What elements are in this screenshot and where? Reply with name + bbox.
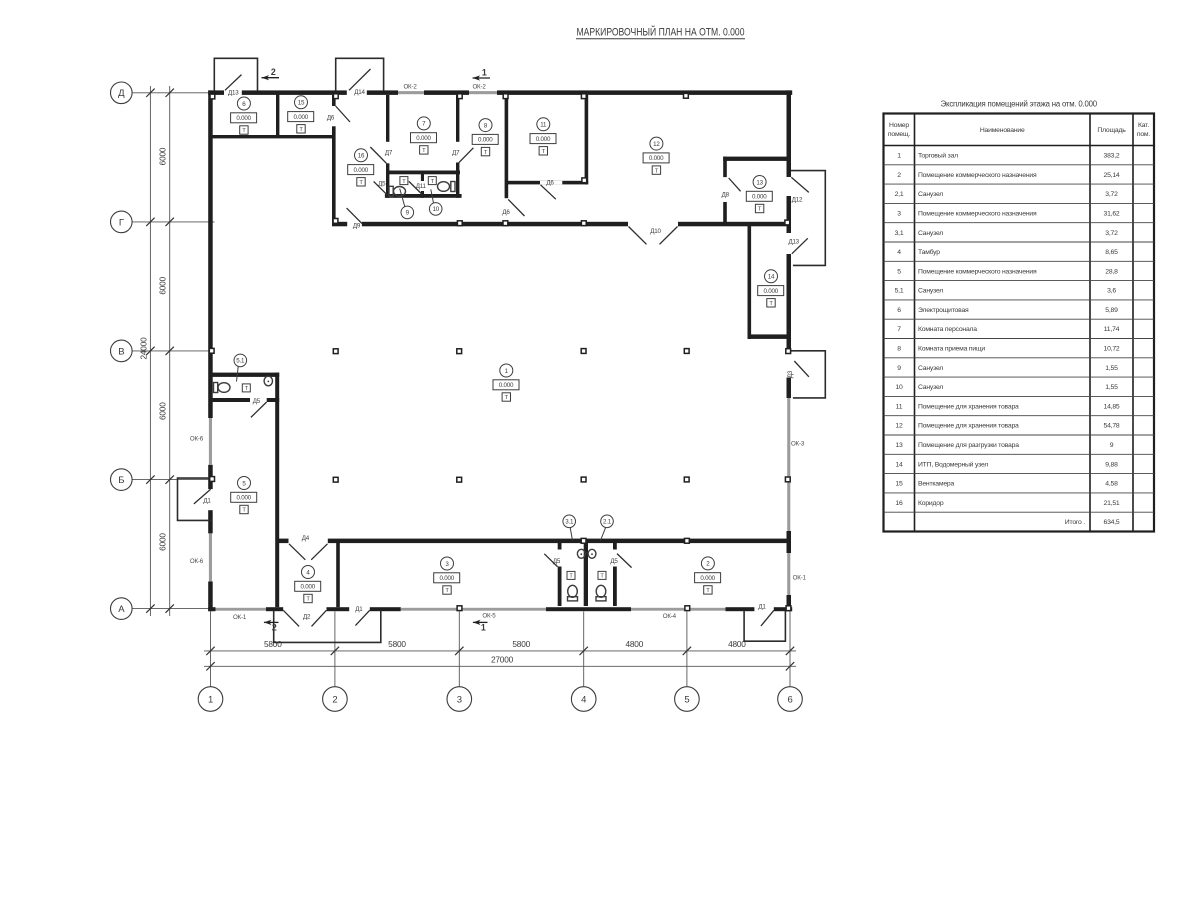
svg-text:Д12: Д12 (792, 197, 803, 204)
svg-text:Б: Б (118, 475, 124, 486)
svg-text:Кат.: Кат. (1138, 122, 1149, 129)
svg-text:10,72: 10,72 (1103, 346, 1119, 353)
svg-text:Д2: Д2 (303, 614, 311, 621)
svg-text:5,89: 5,89 (1105, 307, 1118, 314)
svg-text:24000: 24000 (139, 337, 149, 360)
svg-text:Помещение для хранения товара: Помещение для хранения товара (918, 423, 1019, 430)
svg-text:Т: Т (402, 179, 406, 185)
svg-text:Т: Т (306, 597, 310, 603)
svg-text:8: 8 (484, 122, 488, 129)
svg-text:Санузел: Санузел (918, 230, 943, 237)
svg-text:ОК-1: ОК-1 (793, 575, 807, 582)
svg-text:5: 5 (684, 695, 689, 706)
svg-text:21,51: 21,51 (1103, 500, 1119, 507)
svg-text:54,78: 54,78 (1103, 423, 1119, 430)
svg-text:11,74: 11,74 (1104, 326, 1120, 333)
svg-text:14: 14 (895, 461, 903, 468)
svg-text:2: 2 (272, 623, 277, 633)
svg-text:Д6: Д6 (546, 180, 554, 187)
svg-text:ИТП, Водомерный узел: ИТП, Водомерный узел (918, 460, 988, 468)
svg-text:8,65: 8,65 (1105, 249, 1118, 256)
svg-text:Помещение для хранения товара: Помещение для хранения товара (918, 403, 1019, 410)
svg-text:Электрощитовая: Электрощитовая (918, 307, 969, 314)
svg-text:Д5: Д5 (378, 181, 386, 188)
svg-text:2,1: 2,1 (895, 191, 904, 198)
svg-text:27000: 27000 (491, 655, 514, 665)
svg-text:11: 11 (896, 403, 903, 410)
svg-text:13: 13 (756, 179, 763, 186)
svg-text:помещ.: помещ. (888, 131, 911, 138)
svg-text:Т: Т (769, 301, 773, 307)
svg-text:0.000: 0.000 (499, 382, 514, 389)
svg-text:Помещение для разгрузки товара: Помещение для разгрузки товара (918, 442, 1019, 449)
svg-text:Д5: Д5 (610, 558, 618, 565)
svg-text:Наименование: Наименование (980, 127, 1025, 134)
svg-text:Экспликация помещений этажа на: Экспликация помещений этажа на отм. 0.00… (941, 100, 1098, 109)
svg-text:Т: Т (484, 150, 488, 156)
svg-text:Т: Т (655, 168, 659, 174)
svg-text:Д5: Д5 (553, 558, 561, 565)
svg-text:Площадь: Площадь (1097, 127, 1126, 134)
svg-text:Т: Т (600, 574, 604, 580)
svg-text:ОК-1: ОК-1 (233, 614, 247, 621)
svg-text:0.000: 0.000 (649, 155, 664, 162)
svg-text:3: 3 (445, 561, 449, 568)
svg-text:6: 6 (787, 695, 792, 706)
svg-text:ОК-6: ОК-6 (190, 558, 204, 565)
svg-text:Комната приема пищи: Комната приема пищи (918, 346, 985, 353)
svg-text:8: 8 (897, 346, 901, 353)
svg-text:Д14: Д14 (354, 89, 365, 96)
svg-text:13: 13 (895, 442, 903, 449)
svg-text:14: 14 (768, 274, 775, 281)
svg-text:1,55: 1,55 (1105, 365, 1118, 372)
svg-text:4: 4 (897, 249, 901, 256)
svg-text:6000: 6000 (157, 402, 167, 420)
svg-text:Санузел: Санузел (918, 384, 943, 391)
svg-text:2: 2 (271, 67, 276, 77)
svg-text:В: В (118, 346, 124, 357)
svg-text:0.000: 0.000 (353, 167, 368, 174)
svg-text:Т: Т (445, 588, 449, 594)
svg-text:пом.: пом. (1137, 131, 1151, 138)
svg-text:15: 15 (298, 100, 305, 107)
svg-text:Д4: Д4 (302, 535, 310, 542)
svg-text:Т: Т (542, 149, 546, 155)
svg-text:3,1: 3,1 (895, 230, 904, 237)
svg-text:2: 2 (706, 561, 710, 568)
svg-text:Д8: Д8 (722, 192, 730, 199)
svg-text:25,14: 25,14 (1103, 172, 1119, 179)
svg-text:Д13: Д13 (228, 90, 239, 97)
svg-text:0.000: 0.000 (763, 288, 778, 295)
svg-text:0.000: 0.000 (416, 135, 431, 142)
svg-text:Т: Т (431, 179, 435, 185)
svg-text:16: 16 (358, 153, 365, 160)
svg-text:0.000: 0.000 (478, 137, 493, 144)
svg-text:10: 10 (895, 384, 903, 391)
svg-text:Д1: Д1 (203, 497, 211, 504)
svg-text:3,72: 3,72 (1105, 191, 1118, 198)
svg-text:5: 5 (897, 268, 901, 275)
svg-text:4: 4 (306, 569, 310, 576)
svg-text:Т: Т (299, 127, 303, 133)
svg-text:3: 3 (897, 211, 901, 218)
svg-text:Торговый зал: Торговый зал (918, 152, 958, 160)
svg-text:Д1: Д1 (758, 604, 766, 611)
svg-text:0.000: 0.000 (236, 495, 251, 502)
svg-text:МАРКИРОВОЧНЫЙ ПЛАН НА ОТМ. 0.0: МАРКИРОВОЧНЫЙ ПЛАН НА ОТМ. 0.000 (577, 26, 745, 39)
svg-text:15: 15 (895, 481, 903, 488)
svg-text:2.1: 2.1 (603, 519, 612, 526)
svg-text:9,88: 9,88 (1105, 461, 1118, 468)
svg-text:Т: Т (569, 574, 573, 580)
svg-text:0.000: 0.000 (752, 194, 767, 201)
svg-text:Д10: Д10 (650, 228, 661, 235)
svg-text:28,8: 28,8 (1105, 268, 1118, 275)
svg-text:Т: Т (242, 508, 246, 514)
svg-text:5,1: 5,1 (895, 288, 904, 295)
svg-text:5.1: 5.1 (236, 358, 245, 365)
svg-text:А: А (118, 604, 125, 615)
svg-text:6000: 6000 (157, 533, 167, 551)
svg-text:Д11: Д11 (416, 183, 427, 190)
svg-text:6000: 6000 (157, 276, 167, 294)
svg-text:Т: Т (505, 395, 509, 401)
svg-text:Т: Т (359, 180, 363, 186)
svg-text:6000: 6000 (157, 147, 167, 165)
svg-text:Т: Т (706, 588, 710, 594)
svg-text:1: 1 (208, 695, 213, 706)
svg-text:3,72: 3,72 (1105, 230, 1118, 237)
svg-text:ОК-5: ОК-5 (482, 613, 496, 620)
svg-text:ОК-6: ОК-6 (190, 436, 204, 443)
svg-text:6: 6 (897, 307, 901, 314)
svg-text:Санузел: Санузел (918, 191, 943, 198)
svg-text:Помещение коммерческого назнач: Помещение коммерческого назначения (918, 172, 1037, 179)
svg-text:Тамбур: Тамбур (918, 248, 940, 256)
svg-text:1: 1 (482, 67, 487, 77)
svg-text:5: 5 (242, 480, 246, 487)
svg-text:Т: Т (245, 386, 249, 392)
svg-text:7: 7 (422, 121, 426, 128)
svg-text:Д5: Д5 (253, 398, 261, 405)
svg-text:Д7: Д7 (385, 150, 393, 157)
svg-text:Т: Т (422, 148, 426, 154)
svg-text:5800: 5800 (512, 639, 530, 649)
svg-text:Д7: Д7 (452, 150, 460, 157)
svg-text:1,55: 1,55 (1105, 384, 1118, 391)
svg-text:11: 11 (540, 122, 547, 129)
svg-text:12: 12 (895, 423, 903, 430)
svg-text:0.000: 0.000 (439, 575, 454, 582)
svg-text:Венткамера: Венткамера (918, 481, 955, 488)
svg-text:3,6: 3,6 (1107, 288, 1116, 295)
svg-text:Коридор: Коридор (918, 500, 944, 507)
svg-text:2: 2 (332, 695, 337, 706)
svg-text:Помещение коммерческого назнач: Помещение коммерческого назначения (918, 268, 1037, 275)
svg-text:9: 9 (406, 210, 410, 217)
svg-text:10: 10 (432, 206, 439, 213)
svg-text:3.1: 3.1 (565, 519, 574, 526)
svg-text:Т: Т (758, 207, 762, 213)
svg-text:3: 3 (457, 695, 462, 706)
svg-text:1: 1 (897, 153, 901, 160)
svg-text:Санузел: Санузел (918, 288, 943, 295)
svg-text:7: 7 (897, 326, 901, 333)
svg-text:ОК-3: ОК-3 (791, 441, 805, 448)
svg-text:0.000: 0.000 (300, 584, 315, 591)
svg-text:Г: Г (119, 217, 124, 228)
svg-text:4: 4 (581, 695, 586, 706)
svg-text:ОК-2: ОК-2 (472, 83, 486, 90)
svg-text:ОК-2: ОК-2 (403, 83, 417, 90)
svg-text:12: 12 (653, 141, 660, 148)
svg-text:Комната персонала: Комната персонала (918, 326, 977, 333)
svg-text:Д3: Д3 (787, 370, 794, 378)
svg-text:4,58: 4,58 (1105, 481, 1118, 488)
svg-text:9: 9 (897, 365, 901, 372)
svg-text:0.000: 0.000 (236, 115, 251, 122)
svg-text:Д: Д (118, 88, 125, 99)
svg-text:Д6: Д6 (327, 115, 335, 122)
svg-text:1: 1 (505, 368, 509, 375)
svg-text:0.000: 0.000 (293, 114, 308, 121)
svg-text:4800: 4800 (625, 639, 643, 649)
svg-text:16: 16 (895, 500, 903, 507)
svg-text:1: 1 (481, 623, 486, 633)
svg-text:Санузел: Санузел (918, 365, 943, 372)
svg-text:Номер: Номер (889, 122, 909, 129)
svg-text:0.000: 0.000 (536, 136, 551, 143)
svg-text:634,5: 634,5 (1103, 519, 1119, 526)
svg-text:14,85: 14,85 (1103, 403, 1119, 410)
svg-text:383,2: 383,2 (1103, 153, 1119, 160)
svg-text:Итого .: Итого . (1065, 519, 1086, 526)
svg-text:Д6: Д6 (502, 209, 510, 216)
svg-text:0.000: 0.000 (700, 575, 715, 582)
svg-text:6: 6 (242, 101, 246, 108)
svg-text:Д1: Д1 (355, 606, 363, 613)
svg-text:5800: 5800 (388, 639, 406, 649)
svg-text:31,62: 31,62 (1103, 211, 1119, 218)
svg-text:Т: Т (242, 128, 246, 134)
svg-text:9: 9 (1110, 442, 1114, 449)
svg-text:Помещение коммерческого назнач: Помещение коммерческого назначения (918, 211, 1037, 218)
svg-text:Д9: Д9 (353, 223, 361, 230)
svg-text:Д13: Д13 (788, 239, 799, 246)
svg-text:ОК-4: ОК-4 (663, 613, 677, 620)
svg-text:2: 2 (897, 172, 901, 179)
